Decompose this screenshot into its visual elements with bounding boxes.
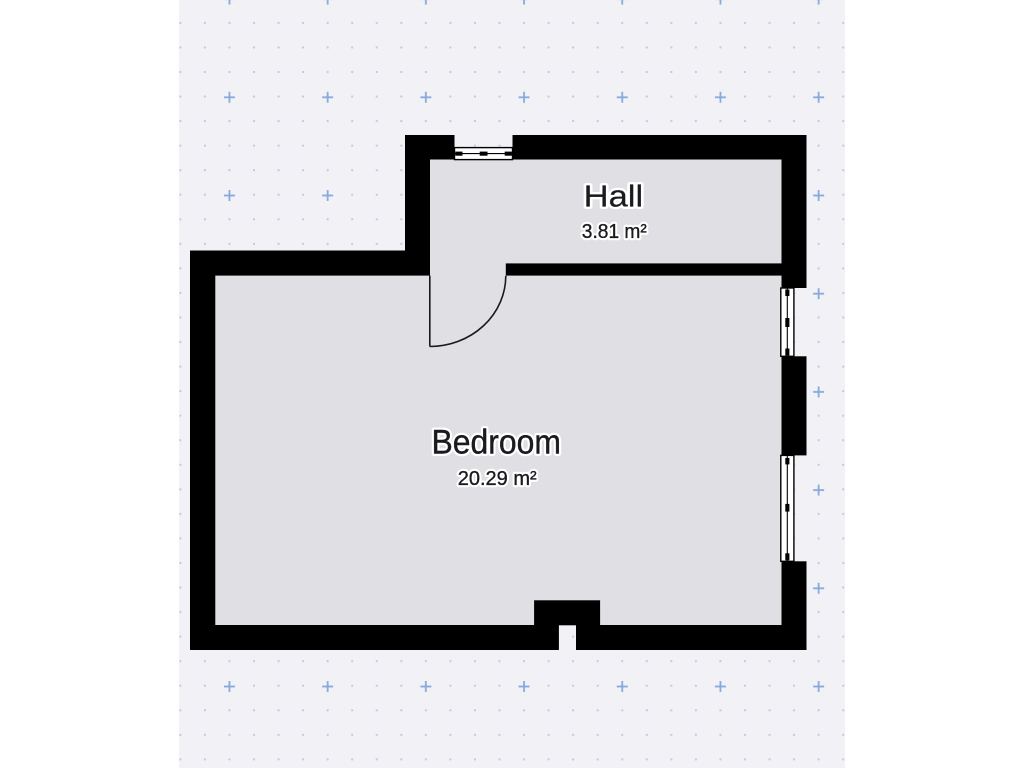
svg-text:3.81 m²: 3.81 m² [582, 221, 647, 243]
svg-text:Bedroom: Bedroom [431, 424, 561, 462]
svg-text:20.29 m²: 20.29 m² [458, 467, 537, 490]
svg-text:Hall: Hall [584, 179, 644, 214]
